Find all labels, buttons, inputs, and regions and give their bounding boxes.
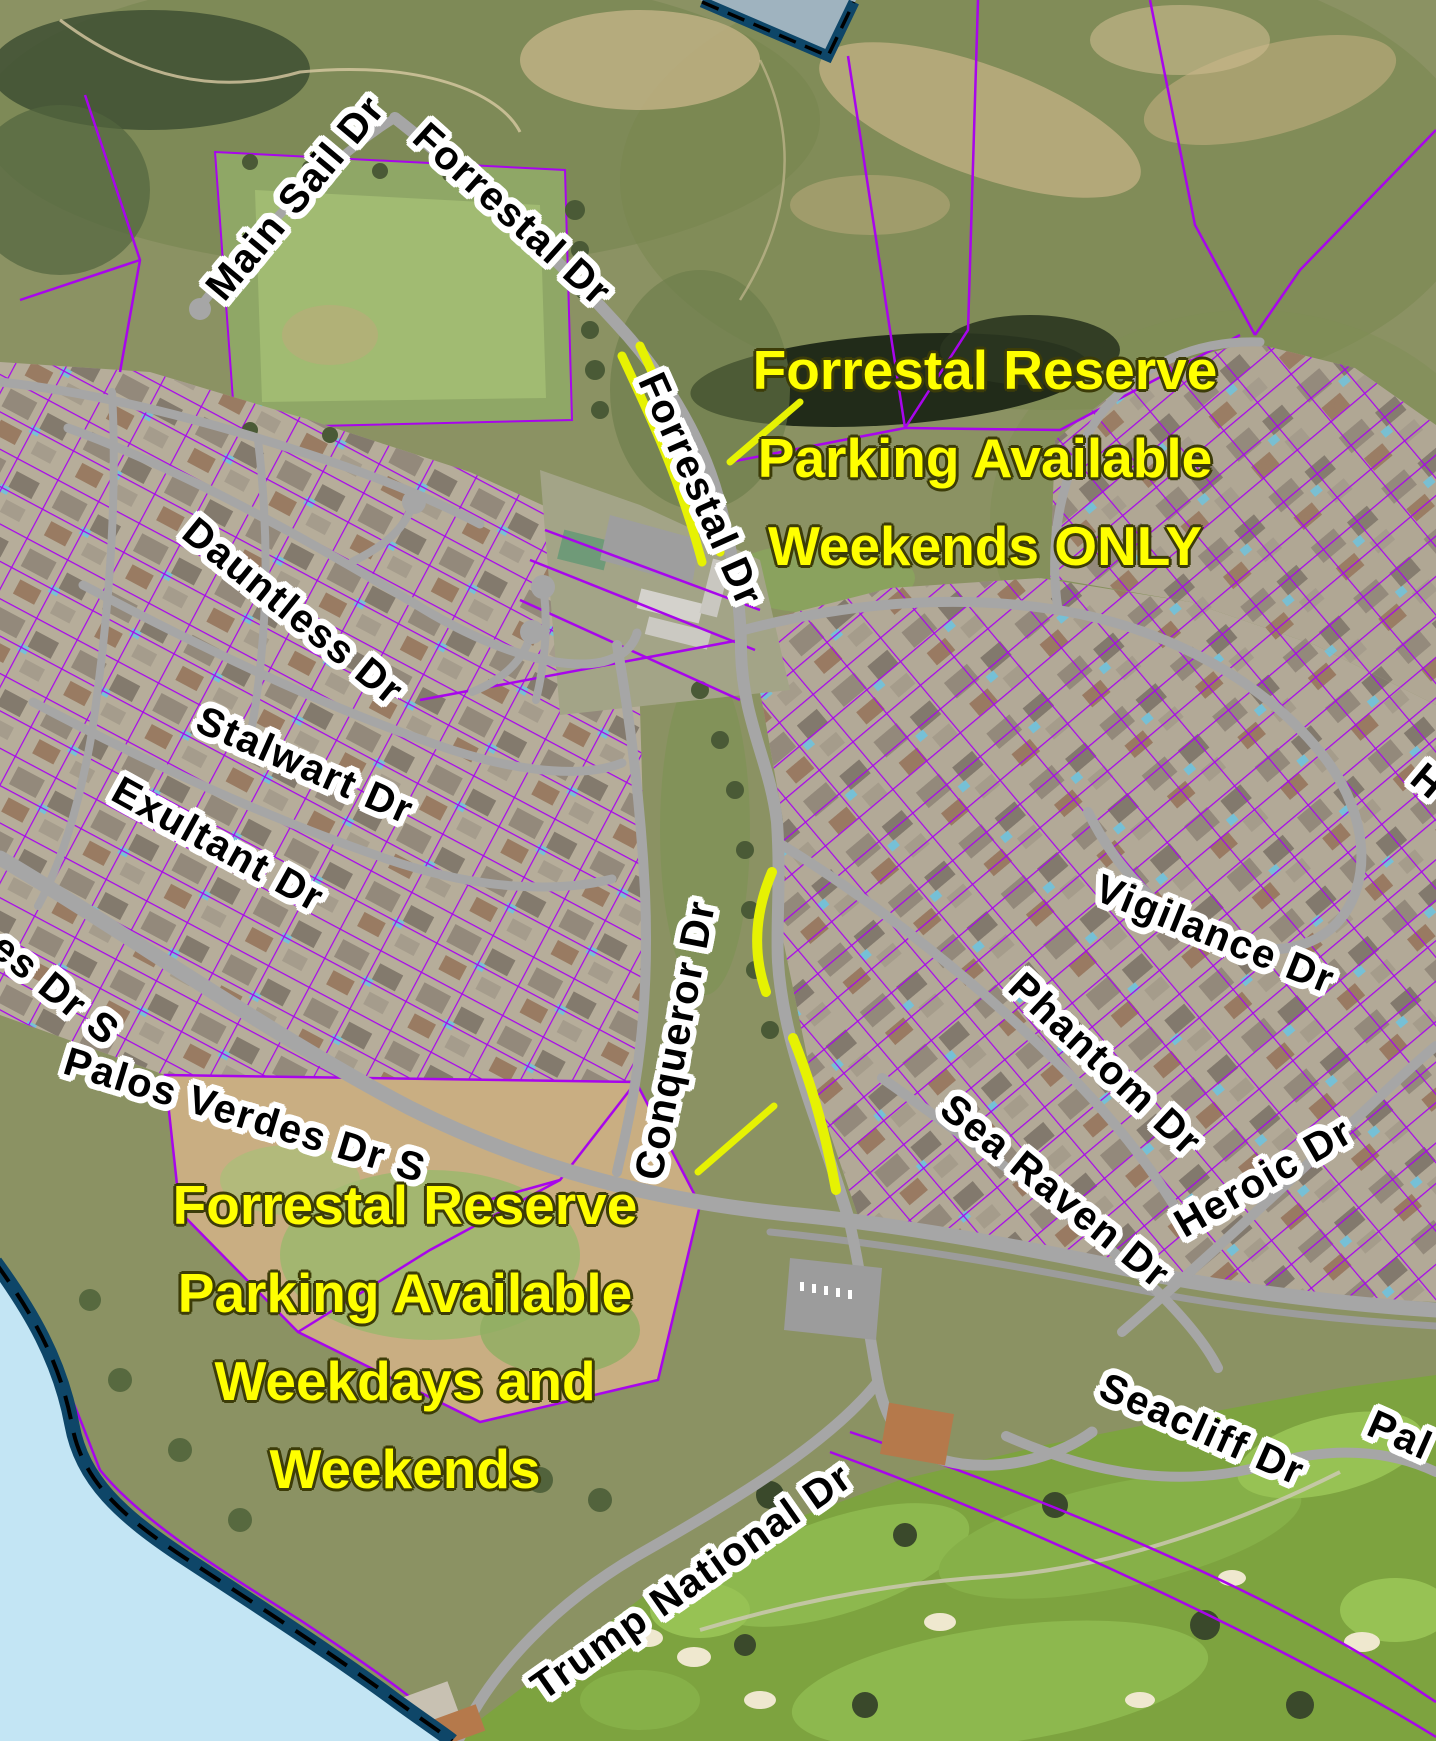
- annotation-parking-weekdays-and-weekends: Forrestal Reserve Parking Available Week…: [173, 1161, 638, 1513]
- park-field: [215, 152, 572, 428]
- annotation-line: Weekdays and: [173, 1337, 638, 1425]
- annotation-line: Weekends: [173, 1425, 638, 1513]
- map-canvas: Main Sail Dr Forrestal Dr Forrestal Dr D…: [0, 0, 1436, 1741]
- annotation-line: Parking Available: [173, 1249, 638, 1337]
- annotation-line: Forrestal Reserve: [753, 326, 1218, 414]
- annotation-line: Forrestal Reserve: [173, 1161, 638, 1249]
- annotation-line: Parking Available: [753, 414, 1218, 502]
- annotation-line: Weekends ONLY: [753, 502, 1218, 590]
- annotation-parking-weekends-only: Forrestal Reserve Parking Available Week…: [753, 326, 1218, 590]
